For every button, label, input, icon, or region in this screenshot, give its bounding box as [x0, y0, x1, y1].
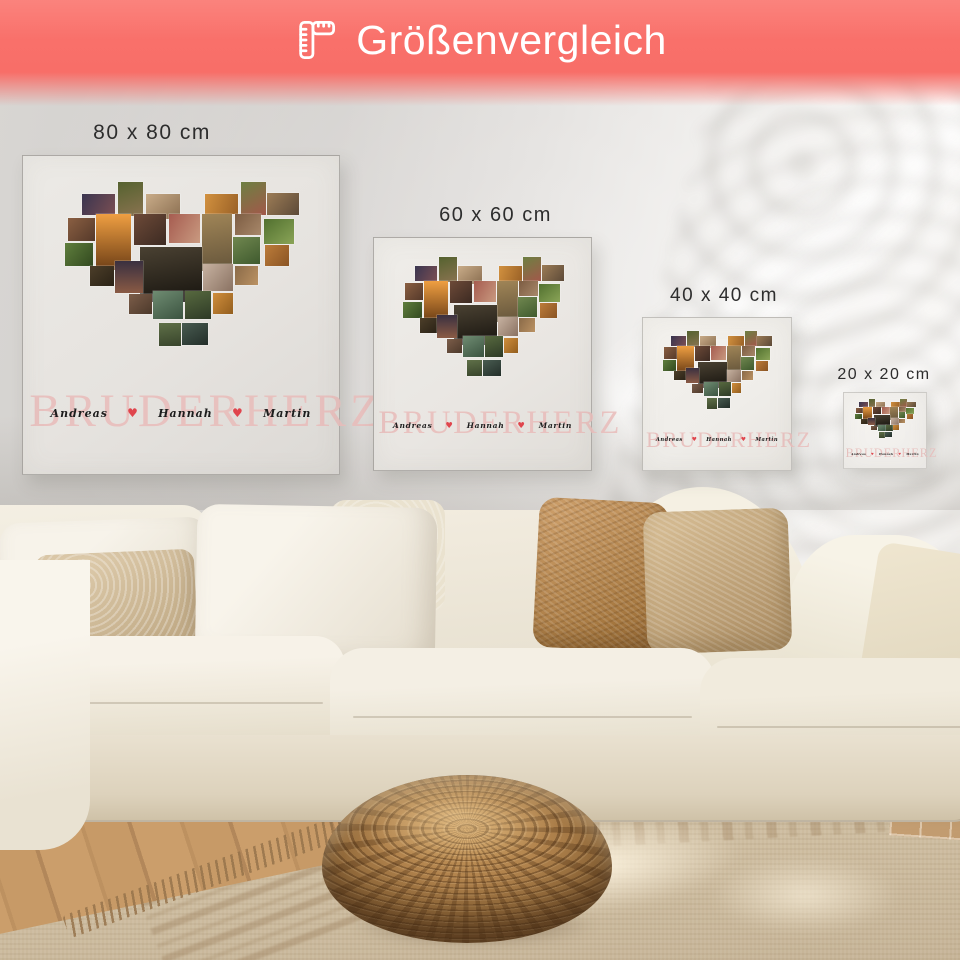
- collage-photo: [728, 336, 743, 346]
- size-label-40: 40 x 40 cm: [650, 285, 798, 307]
- collage-photo: [886, 425, 893, 432]
- collage-photo: [467, 360, 482, 377]
- size-label-60: 60 x 60 cm: [387, 204, 604, 227]
- collage-photo: [264, 219, 294, 245]
- collage-photo: [447, 339, 463, 353]
- photo-collage-heart: [853, 398, 916, 447]
- collage-photo: [159, 323, 181, 346]
- collage-photo: [663, 360, 676, 371]
- collage-photo: [202, 214, 232, 271]
- canvas-text: BRUDERHERZ Andreas♥Hannah♥Martin: [846, 447, 925, 461]
- collage-photo: [68, 218, 95, 242]
- collage-photo: [265, 245, 289, 266]
- canvas-print-60: BRUDERHERZ Andreas♥Hannah♥Martin: [373, 237, 592, 471]
- collage-photo: [129, 294, 152, 314]
- collage-photo: [687, 331, 699, 347]
- collage-photo: [203, 264, 233, 291]
- collage-photo: [742, 371, 753, 380]
- collage-photo: [504, 338, 518, 353]
- collage-photo: [241, 182, 267, 215]
- canvas-names: Andreas♥Hannah♥Martin: [51, 406, 312, 420]
- collage-photo: [719, 382, 732, 395]
- person-name: Hannah: [158, 407, 213, 420]
- collage-photo: [539, 284, 560, 303]
- collage-photo: [499, 266, 522, 281]
- header-banner: Größenvergleich: [0, 0, 960, 106]
- collage-photo: [899, 412, 906, 418]
- sunlight-patch: [670, 840, 940, 950]
- canvas-names: Andreas♥Hannah♥Martin: [393, 420, 572, 430]
- person-name: Andreas: [656, 437, 683, 443]
- canvas-print-20: BRUDERHERZ Andreas♥Hannah♥Martin: [843, 392, 927, 469]
- person-name: Martin: [906, 452, 919, 456]
- collage-photo: [882, 407, 890, 414]
- canvas-text: BRUDERHERZ Andreas♥Hannah♥Martin: [646, 428, 788, 455]
- canvas-20x20: 20 x 20 cm BRUDERHERZ Andreas♥Hannah♥Mar…: [843, 366, 925, 469]
- heart-icon: ♥: [518, 420, 526, 430]
- seat-seam: [717, 726, 960, 728]
- collage-photo: [757, 336, 772, 347]
- banner-title: Größenvergleich: [356, 17, 667, 64]
- collage-photo: [704, 382, 718, 395]
- collage-photo: [65, 243, 93, 266]
- collage-photo: [115, 261, 143, 293]
- heart-icon: ♥: [127, 406, 139, 420]
- seat-seam: [353, 716, 692, 718]
- collage-photo: [742, 346, 755, 356]
- heart-icon: ♥: [741, 437, 747, 443]
- collage-photo: [153, 291, 183, 319]
- collage-photo: [463, 336, 484, 356]
- collage-photo: [745, 331, 757, 347]
- collage-photo: [871, 426, 877, 431]
- collage-photo: [671, 336, 686, 346]
- collage-photo: [235, 214, 262, 235]
- canvas-40x40: 40 x 40 cm BRUDERHERZ Andreas♥Hannah♥Mar…: [642, 285, 790, 471]
- collage-photo: [686, 368, 699, 383]
- collage-photo: [893, 425, 898, 430]
- heart-icon: ♥: [692, 437, 698, 443]
- collage-photo: [213, 293, 234, 314]
- canvas-names: Andreas♥Hannah♥Martin: [656, 437, 778, 443]
- collage-photo: [205, 194, 238, 215]
- collage-photo: [695, 346, 710, 361]
- collage-photo: [540, 303, 557, 318]
- collage-photo: [899, 407, 906, 412]
- heart-icon: ♥: [446, 420, 454, 430]
- collage-photo: [185, 291, 212, 319]
- sofa-side-left: [0, 560, 90, 850]
- person-name: Andreas: [393, 421, 433, 430]
- collage-photo: [474, 281, 496, 302]
- canvas-80x80: 80 x 80 cm BRUDERHERZ Andreas♥Hannah♥Mar…: [22, 121, 338, 475]
- collage-photo: [134, 214, 167, 245]
- banner-content: Größenvergleich: [0, 9, 960, 71]
- heart-icon: ♥: [898, 452, 901, 456]
- collage-photo: [861, 419, 867, 424]
- canvas-print-80: BRUDERHERZ Andreas♥Hannah♥Martin: [22, 155, 340, 475]
- collage-photo: [727, 370, 741, 383]
- collage-photo: [756, 348, 770, 360]
- canvas-text: BRUDERHERZ Andreas♥Hannah♥Martin: [378, 406, 586, 448]
- collage-photo: [415, 266, 438, 282]
- collage-photo: [732, 383, 742, 393]
- collage-photo: [267, 193, 299, 216]
- collage-photo: [169, 214, 201, 243]
- canvas-60x60: 60 x 60 cm BRUDERHERZ Andreas♥Hannah♥Mar…: [373, 204, 590, 471]
- collage-photo: [907, 402, 915, 407]
- collage-photo: [90, 266, 114, 286]
- canvas-print-40: BRUDERHERZ Andreas♥Hannah♥Martin: [642, 317, 792, 471]
- collage-photo: [233, 237, 260, 264]
- collage-photo: [692, 384, 703, 393]
- collage-photo: [542, 265, 564, 282]
- person-name: Andreas: [51, 407, 108, 420]
- photo-collage-heart: [660, 329, 774, 428]
- collage-photo: [82, 194, 115, 216]
- collage-photo: [519, 281, 537, 296]
- collage-photo: [483, 360, 501, 376]
- person-name: Martin: [539, 421, 572, 430]
- collage-photo: [906, 408, 914, 414]
- size-label-80: 80 x 80 cm: [0, 121, 310, 145]
- person-name: Martin: [755, 437, 778, 443]
- collage-photo: [756, 361, 767, 371]
- collage-photo: [899, 419, 905, 423]
- collage-photo: [718, 398, 730, 408]
- person-name: Martin: [263, 407, 311, 420]
- product-size-comparison-scene: Größenvergleich 80 x 80 cm BRUDERHERZ An…: [0, 0, 960, 960]
- collage-photo: [868, 418, 875, 426]
- collage-photo: [485, 336, 503, 356]
- collage-photo: [182, 323, 208, 345]
- collage-photo: [873, 407, 882, 414]
- collage-photo: [711, 346, 726, 360]
- collage-photo: [420, 318, 437, 332]
- collage-photo: [741, 357, 754, 370]
- collage-photo: [885, 432, 892, 437]
- collage-photo: [450, 281, 473, 304]
- size-label-20: 20 x 20 cm: [803, 366, 960, 384]
- collage-photo: [437, 315, 456, 338]
- photo-collage-heart: [399, 254, 566, 405]
- person-name: Hannah: [879, 452, 893, 456]
- collage-photo: [518, 297, 536, 317]
- collage-photo: [235, 266, 258, 285]
- collage-photo: [498, 317, 519, 337]
- collage-photo: [664, 347, 677, 358]
- collage-photo: [707, 398, 717, 409]
- collage-photo: [907, 414, 913, 419]
- taupe-textured-pillow: [643, 508, 793, 655]
- collage-photo: [118, 182, 144, 216]
- canvas-text: BRUDERHERZ Andreas♥Hannah♥Martin: [29, 387, 332, 444]
- collage-photo: [439, 257, 457, 282]
- person-name: Andreas: [851, 452, 866, 456]
- canvas-names: Andreas♥Hannah♥Martin: [851, 452, 919, 456]
- photo-collage-heart: [59, 178, 302, 385]
- heart-icon: ♥: [871, 452, 874, 456]
- heart-icon: ♥: [232, 406, 244, 420]
- collage-photo: [403, 302, 422, 319]
- person-name: Hannah: [706, 437, 732, 443]
- collage-photo: [879, 432, 885, 437]
- person-name: Hannah: [467, 421, 505, 430]
- collage-photo: [878, 425, 886, 432]
- collage-photo: [523, 257, 541, 281]
- collage-photo: [405, 283, 423, 300]
- folding-ruler-icon: [293, 15, 339, 65]
- collage-photo: [674, 371, 685, 380]
- collage-photo: [856, 408, 863, 414]
- collage-photo: [519, 318, 535, 332]
